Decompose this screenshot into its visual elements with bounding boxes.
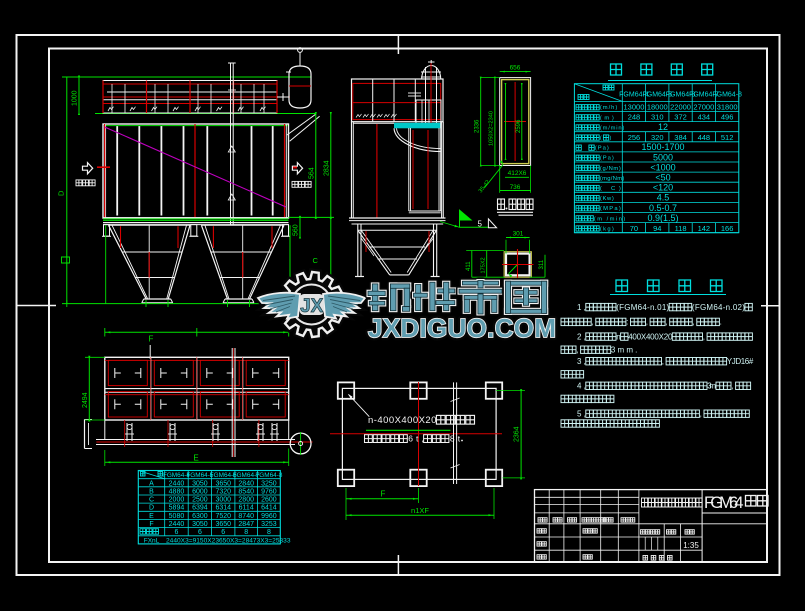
svg-text:7320: 7320 <box>215 488 231 495</box>
svg-text:A: A <box>149 480 154 487</box>
svg-text:,: , <box>665 318 667 327</box>
svg-text:560: 560 <box>293 224 300 236</box>
svg-text:,: , <box>576 345 578 354</box>
svg-text:6: 6 <box>198 529 202 536</box>
svg-text:3000: 3000 <box>215 497 231 504</box>
svg-text:(m/h): (m/h) <box>600 105 617 111</box>
svg-text:,: , <box>692 318 694 327</box>
svg-text:2834: 2834 <box>324 160 331 176</box>
svg-text:<120: <120 <box>653 183 673 193</box>
svg-text:(Pa): (Pa) <box>595 146 609 152</box>
svg-text:,: , <box>703 332 705 341</box>
svg-text:E: E <box>149 513 154 520</box>
svg-text:2800: 2800 <box>238 497 254 504</box>
svg-text:13000: 13000 <box>624 103 645 112</box>
svg-text:9960: 9960 <box>261 513 277 520</box>
svg-text:320: 320 <box>651 133 664 142</box>
svg-text:142: 142 <box>698 224 711 233</box>
svg-text:6: 6 <box>221 529 225 536</box>
svg-text:5000: 5000 <box>653 152 673 162</box>
svg-text:5894: 5894 <box>169 505 185 512</box>
svg-text:F: F <box>149 521 153 528</box>
svg-text:2440X3=9150X23650X3=28473X3=25: 2440X3=9150X23650X3=28473X3=25333 <box>166 537 291 544</box>
svg-text:7520: 7520 <box>215 513 231 520</box>
svg-text:8540: 8540 <box>238 488 254 495</box>
svg-text:4,: 4, <box>577 382 586 391</box>
svg-text:.: . <box>720 318 722 327</box>
svg-text:2,: 2, <box>577 332 586 341</box>
svg-text:D: D <box>57 190 66 196</box>
svg-text:6414: 6414 <box>261 505 277 512</box>
svg-text:5: 5 <box>478 220 483 229</box>
svg-text:(mg/Nm): (mg/Nm) <box>600 176 624 182</box>
svg-text:301: 301 <box>513 231 524 238</box>
svg-text:496: 496 <box>721 113 734 122</box>
svg-text:(Kw): (Kw) <box>600 196 614 202</box>
svg-text:384: 384 <box>674 133 687 142</box>
svg-text:8: 8 <box>244 529 248 536</box>
svg-text:411: 411 <box>466 261 472 271</box>
svg-text:F: F <box>149 335 154 344</box>
svg-text:248: 248 <box>628 113 641 122</box>
svg-text:22000: 22000 <box>670 103 691 112</box>
svg-text:,: , <box>662 357 664 366</box>
svg-text:8740: 8740 <box>238 513 254 520</box>
svg-text:B: B <box>149 488 154 495</box>
svg-text:31800: 31800 <box>717 103 738 112</box>
svg-text:n-400X400X20: n-400X400X20 <box>368 415 436 426</box>
svg-text:512: 512 <box>721 133 734 142</box>
svg-text:JXDIGUO.COM: JXDIGUO.COM <box>368 313 556 343</box>
svg-text:<1000: <1000 <box>650 162 675 172</box>
svg-text:0.9(1.5): 0.9(1.5) <box>647 213 678 223</box>
svg-text:(: ( <box>600 136 602 142</box>
svg-text::: : <box>626 318 628 327</box>
svg-text:(m /min): (m /min) <box>594 216 625 222</box>
svg-text:736: 736 <box>510 184 521 191</box>
svg-text:27000: 27000 <box>693 103 714 112</box>
svg-text:372: 372 <box>674 113 687 122</box>
svg-text:n1XF: n1XF <box>411 506 429 515</box>
svg-text:2440: 2440 <box>169 521 185 528</box>
svg-text:6394: 6394 <box>192 505 208 512</box>
svg-text:6300: 6300 <box>192 513 208 520</box>
svg-text:,: , <box>646 318 648 327</box>
svg-text:3m: 3m <box>707 382 716 391</box>
svg-text:434: 434 <box>698 113 711 122</box>
svg-text:310: 310 <box>651 113 664 122</box>
svg-text:118: 118 <box>675 224 687 233</box>
svg-text:448: 448 <box>698 133 711 142</box>
svg-text:70: 70 <box>630 224 638 233</box>
svg-text:3,: 3, <box>577 357 586 366</box>
svg-text:1000: 1000 <box>72 90 79 106</box>
svg-text:175X2: 175X2 <box>481 257 487 273</box>
svg-text:3650: 3650 <box>215 521 231 528</box>
svg-text:6000: 6000 <box>192 488 208 495</box>
svg-text:5,: 5, <box>577 409 586 418</box>
svg-text:): ) <box>609 136 611 142</box>
svg-text:256: 256 <box>628 133 641 142</box>
svg-text:D: D <box>149 505 154 512</box>
svg-text:400X400X20: 400X400X20 <box>628 332 673 341</box>
svg-text:311: 311 <box>539 259 545 269</box>
svg-text:412X6: 412X6 <box>508 170 527 177</box>
svg-text:4.5: 4.5 <box>657 193 670 203</box>
svg-text:(FGM64-n.01): (FGM64-n.01) <box>616 303 669 312</box>
svg-text:2000: 2000 <box>169 497 185 504</box>
svg-text:0.5-0.7: 0.5-0.7 <box>649 203 677 213</box>
svg-text:1050X2=2340: 1050X2=2340 <box>489 111 495 146</box>
svg-text:6t,: 6t, <box>408 434 423 444</box>
svg-text:FGM64-8: FGM64-8 <box>712 92 742 99</box>
svg-text:(m/min): (m/min) <box>600 125 624 131</box>
svg-text:FGM64: FGM64 <box>704 494 744 512</box>
svg-text:3050: 3050 <box>192 521 208 528</box>
svg-text:(Pa): (Pa) <box>600 156 614 162</box>
svg-text:(FGM64-n.02): (FGM64-n.02) <box>692 303 745 312</box>
svg-text:1500-1700: 1500-1700 <box>641 142 684 152</box>
svg-text:564: 564 <box>309 167 316 179</box>
svg-text:2596: 2596 <box>516 119 522 133</box>
svg-text:<50: <50 <box>655 173 670 183</box>
svg-text:2840: 2840 <box>238 480 254 487</box>
svg-text:1,: 1, <box>577 303 586 312</box>
svg-text:6114: 6114 <box>239 505 254 512</box>
svg-text:FGM64-8: FGM64-8 <box>255 472 282 479</box>
svg-text:9760: 9760 <box>261 488 277 495</box>
svg-text:8: 8 <box>267 529 271 536</box>
svg-text:3050: 3050 <box>192 480 208 487</box>
svg-text:2440: 2440 <box>169 480 185 487</box>
svg-text:656: 656 <box>510 65 521 72</box>
svg-text:C: C <box>313 256 319 265</box>
svg-text:2364: 2364 <box>514 426 521 442</box>
svg-text:1:35: 1:35 <box>683 541 699 550</box>
svg-text:n: n <box>616 332 620 341</box>
svg-text:3650: 3650 <box>215 480 231 487</box>
svg-text:,: , <box>731 382 733 391</box>
svg-text:FXnL: FXnL <box>144 537 160 544</box>
svg-text:3250: 3250 <box>261 480 277 487</box>
svg-text:E: E <box>193 453 198 462</box>
svg-text:3253: 3253 <box>261 521 277 528</box>
svg-text:2494: 2494 <box>82 392 89 408</box>
svg-text:2500: 2500 <box>192 497 208 504</box>
svg-text:6314: 6314 <box>215 505 231 512</box>
svg-text:,: , <box>700 409 702 418</box>
svg-text:166: 166 <box>721 224 734 233</box>
svg-text:18000: 18000 <box>647 103 668 112</box>
svg-text:2847: 2847 <box>238 521 254 528</box>
svg-text:F: F <box>381 490 386 499</box>
svg-text:6: 6 <box>174 529 178 536</box>
svg-text:JX: JX <box>300 296 324 317</box>
svg-text:,: , <box>591 318 593 327</box>
svg-text:12: 12 <box>658 122 668 132</box>
svg-text:4880: 4880 <box>169 488 185 495</box>
svg-text:2336: 2336 <box>475 119 481 133</box>
svg-text:2600: 2600 <box>261 497 277 504</box>
svg-text:(g/Nm): (g/Nm) <box>600 166 621 172</box>
svg-text:94: 94 <box>653 224 661 233</box>
svg-text:C: C <box>149 497 154 504</box>
svg-text:5080: 5080 <box>169 513 185 520</box>
svg-text:YJD16#: YJD16# <box>727 357 754 366</box>
